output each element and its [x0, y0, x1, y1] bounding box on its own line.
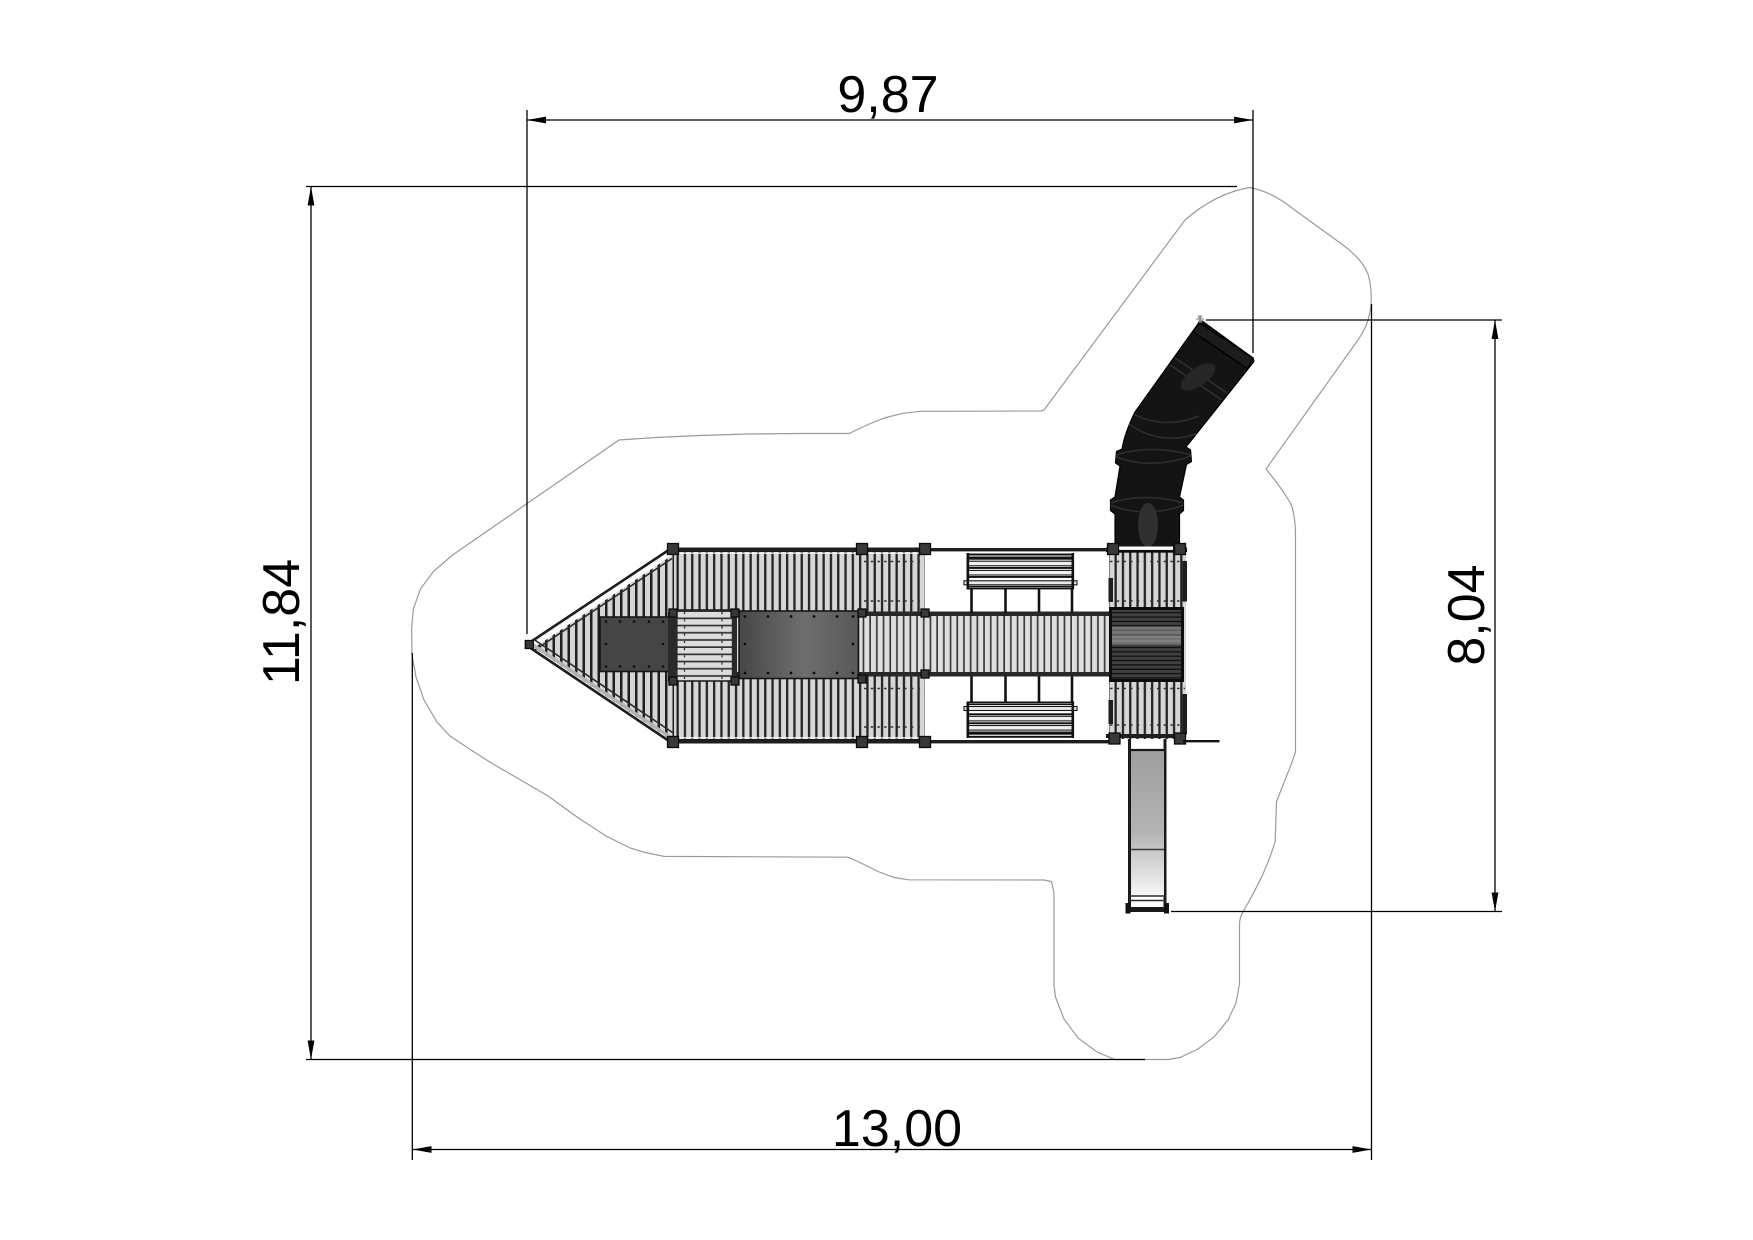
svg-text:8,04: 8,04: [1438, 564, 1496, 665]
svg-text:11,84: 11,84: [253, 559, 311, 685]
svg-text:9,87: 9,87: [837, 66, 938, 124]
svg-text:13,00: 13,00: [832, 1100, 962, 1158]
